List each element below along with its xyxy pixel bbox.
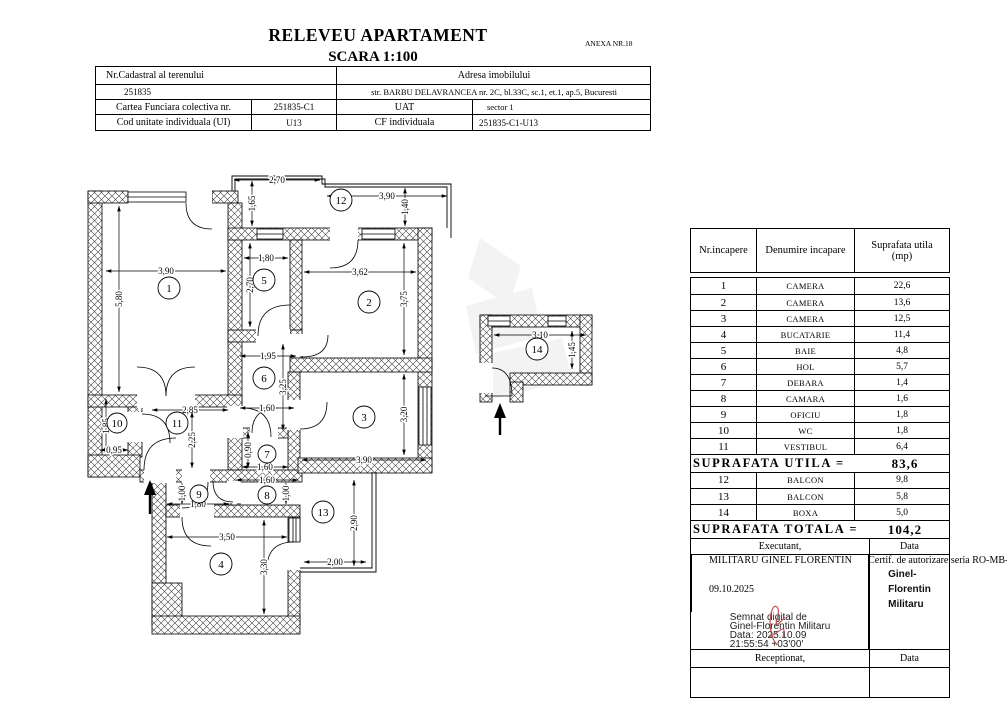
dimension-label: 2,00 xyxy=(327,557,343,567)
room-number-5: 5 xyxy=(261,275,267,287)
col-header-suprafata-line2: (mp) xyxy=(892,251,912,262)
room-name: OFICIU xyxy=(756,407,854,422)
room-row-9: 9OFICIU1,8 xyxy=(691,406,949,422)
date-cell xyxy=(869,555,949,650)
dimension-label: 3,20 xyxy=(399,406,409,422)
room-number-4: 4 xyxy=(218,559,224,571)
dimension-label: 2,90 xyxy=(349,515,359,531)
rooms-table-body: 1CAMERA22,62CAMERA13,63CAMERA12,54BUCATA… xyxy=(690,277,950,455)
room-number-6: 6 xyxy=(261,373,267,385)
room-nr: 13 xyxy=(691,489,756,504)
room-area: 11,4 xyxy=(854,327,949,342)
suprafata-utila-label: SUPRAFATA UTILA = xyxy=(691,456,861,471)
room-area: 12,5 xyxy=(854,311,949,326)
dimension-label: 3,50 xyxy=(219,532,235,542)
room-number-14: 14 xyxy=(532,344,544,356)
room-name: BALCON xyxy=(756,489,854,504)
dimension-label: 1,95 xyxy=(260,351,276,361)
room-number-9: 9 xyxy=(196,489,202,501)
room-name: CAMARA xyxy=(756,391,854,406)
col-header-denumire: Denumire incapare xyxy=(756,229,854,272)
room-nr: 3 xyxy=(691,311,756,326)
dimension-label: 1,45 xyxy=(567,342,577,358)
room-row-3: 3CAMERA12,5 xyxy=(691,310,949,326)
room-name: CAMERA xyxy=(756,295,854,310)
dimension-label: 1,60 xyxy=(257,462,273,472)
document-page: RELEVEU APARTAMENT SCARA 1:100 ANEXA NR.… xyxy=(0,0,1007,720)
room-area: 9,8 xyxy=(854,472,949,488)
dimension-label: 2,70 xyxy=(269,175,285,185)
signature-mark-icon xyxy=(757,593,795,649)
room-row-11: 11VESTIBUL6,4 xyxy=(691,438,949,454)
room-row-1: 1CAMERA22,6 xyxy=(691,278,949,294)
room-row-10: 10WC1,8 xyxy=(691,422,949,438)
room-area: 1,8 xyxy=(854,423,949,438)
dimension-label: 1,65 xyxy=(247,195,257,211)
room-row-2: 2CAMERA13,6 xyxy=(691,294,949,310)
dimension-label: 3,25 xyxy=(278,379,288,395)
suprafata-utila-row: SUPRAFATA UTILA = 83,6 xyxy=(690,455,950,473)
room-row-5: 5BAIE4,8 xyxy=(691,342,949,358)
room-number-3: 3 xyxy=(361,412,367,424)
room-nr: 11 xyxy=(691,439,756,454)
room-area: 6,4 xyxy=(854,439,949,454)
door-openings xyxy=(127,190,493,570)
suprafata-totala-value: 104,2 xyxy=(861,522,949,538)
room-name: BAIE xyxy=(756,343,854,358)
room-nr: 12 xyxy=(691,472,756,488)
dimension-label: 1,00 xyxy=(177,485,187,501)
col-header-suprafata: Suprafata utila (mp) xyxy=(854,229,949,272)
room-number-13: 13 xyxy=(318,507,330,519)
room-nr: 2 xyxy=(691,295,756,310)
data-label: Data xyxy=(869,539,949,554)
dimension-label: 5,80 xyxy=(114,291,124,307)
room-row-14: 14BOXA5,0 xyxy=(691,504,949,520)
data-label-2: Data xyxy=(869,650,949,667)
receptionat-label: Receptionat, xyxy=(691,650,869,667)
dimension-label: 3,90 xyxy=(356,455,372,465)
empty-cell-left xyxy=(691,668,869,697)
executant-header-row: Executant, Data xyxy=(690,539,950,555)
executant-label: Executant, xyxy=(691,539,869,554)
room-area: 1,8 xyxy=(854,407,949,422)
room-nr: 1 xyxy=(691,278,756,294)
room-name: CAMERA xyxy=(756,311,854,326)
room-area: 5,0 xyxy=(854,505,949,520)
dimension-label: 0,90 xyxy=(243,442,253,458)
room-number-8: 8 xyxy=(264,490,270,502)
room-row-6: 6HOL5,7 xyxy=(691,358,949,374)
dimension-label: 1,60 xyxy=(259,403,275,413)
room-name: DEBARA xyxy=(756,375,854,390)
empty-cell-right xyxy=(869,668,949,697)
room-area: 13,6 xyxy=(854,295,949,310)
room-area: 5,7 xyxy=(854,359,949,374)
room-nr: 6 xyxy=(691,359,756,374)
entrance-arrow-icon xyxy=(494,403,506,418)
room-nr: 5 xyxy=(691,343,756,358)
room-area: 4,8 xyxy=(854,343,949,358)
room-name: VESTIBUL xyxy=(756,439,854,454)
room-name: BALCON xyxy=(756,472,854,488)
dimension-label: 3,90 xyxy=(379,191,395,201)
dimension-label: 1,60 xyxy=(259,475,275,485)
room-nr: 8 xyxy=(691,391,756,406)
room-name: WC xyxy=(756,423,854,438)
dimension-label: 1,40 xyxy=(400,199,410,215)
room-nr: 9 xyxy=(691,407,756,422)
room-name: HOL xyxy=(756,359,854,374)
room-row-4: 4BUCATARIE11,4 xyxy=(691,326,949,342)
dimension-label: 1,80 xyxy=(258,253,274,263)
dimension-label: 3,75 xyxy=(399,291,409,307)
room-area: 5,8 xyxy=(854,489,949,504)
executant-info-row: MILITARU GINEL FLORENTIN Certif. de auto… xyxy=(690,555,950,650)
room-number-12: 12 xyxy=(336,195,347,207)
room-name: BUCATARIE xyxy=(756,327,854,342)
room-number-7: 7 xyxy=(264,449,270,461)
dimension-label: 2,25 xyxy=(187,432,197,448)
room-nr: 7 xyxy=(691,375,756,390)
room-area: 22,6 xyxy=(854,278,949,294)
room-number-1: 1 xyxy=(166,283,172,295)
dimension-label: 2,85 xyxy=(182,405,198,415)
room-number-11: 11 xyxy=(172,418,183,430)
suprafata-utila-value: 83,6 xyxy=(861,456,949,472)
dimension-label: 0,95 xyxy=(106,445,122,455)
col-header-nr: Nr.incapere xyxy=(691,229,756,272)
room-row-12: 12BALCON9,8 xyxy=(691,472,949,488)
room-row-7: 7DEBARA1,4 xyxy=(691,374,949,390)
dimension-label: 1,00 xyxy=(281,485,291,501)
suprafata-totala-label: SUPRAFATA TOTALA = xyxy=(691,522,861,537)
suprafata-totala-row: SUPRAFATA TOTALA = 104,2 xyxy=(690,521,950,539)
annex-rooms-body: 12BALCON9,813BALCON5,814BOXA5,0 xyxy=(690,472,950,521)
room-number-2: 2 xyxy=(366,297,372,309)
room-name: CAMERA xyxy=(756,278,854,294)
room-nr: 14 xyxy=(691,505,756,520)
room-name: BOXA xyxy=(756,505,854,520)
rooms-table: Nr.incapere Denumire incapare Suprafata … xyxy=(690,228,950,698)
rooms-table-header: Nr.incapere Denumire incapare Suprafata … xyxy=(690,228,950,273)
room-row-13: 13BALCON5,8 xyxy=(691,488,949,504)
col-header-suprafata-line1: Suprafata utila xyxy=(871,240,933,251)
dimension-label: 3,30 xyxy=(259,559,269,575)
room-number-10: 10 xyxy=(112,418,124,430)
room-row-8: 8CAMARA1,6 xyxy=(691,390,949,406)
room-nr: 4 xyxy=(691,327,756,342)
room-area: 1,6 xyxy=(854,391,949,406)
room-area: 1,4 xyxy=(854,375,949,390)
dimension-label: 3,62 xyxy=(352,267,368,277)
room-nr: 10 xyxy=(691,423,756,438)
empty-footer-row xyxy=(690,668,950,698)
dimension-label: 3,90 xyxy=(158,266,174,276)
receptionat-row: Receptionat, Data xyxy=(690,650,950,668)
